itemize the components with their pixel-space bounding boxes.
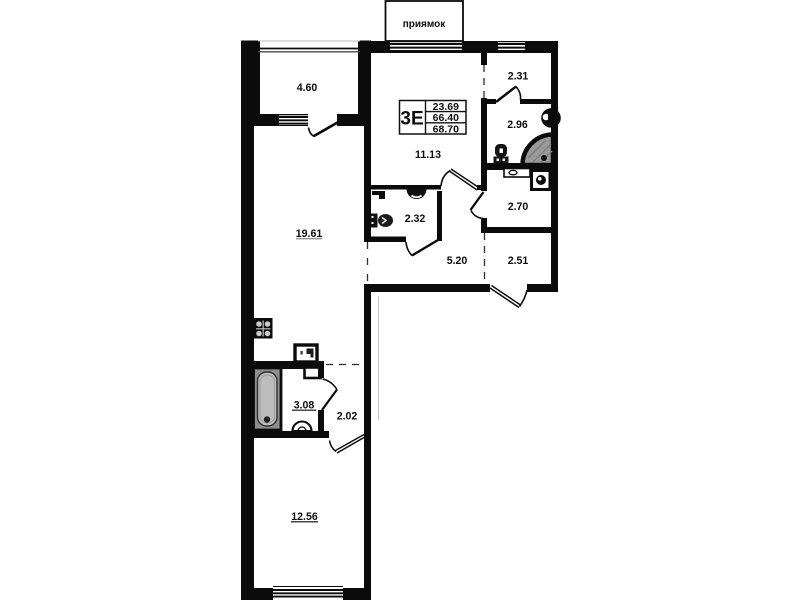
svg-text:66.40: 66.40 [433,112,459,124]
svg-text:68.70: 68.70 [433,123,459,135]
svg-text:2.51: 2.51 [508,255,529,267]
svg-text:2.31: 2.31 [508,71,529,83]
svg-text:2.02: 2.02 [337,411,358,423]
svg-text:4.60: 4.60 [297,82,318,94]
svg-text:12.56: 12.56 [291,511,318,523]
svg-text:приямок: приямок [403,19,447,30]
svg-text:2.32: 2.32 [405,213,426,225]
svg-text:5.20: 5.20 [447,255,468,267]
svg-text:2.96: 2.96 [507,119,528,131]
svg-text:3Е: 3Е [400,109,423,130]
svg-text:2.70: 2.70 [508,201,529,213]
svg-text:11.13: 11.13 [415,149,441,161]
